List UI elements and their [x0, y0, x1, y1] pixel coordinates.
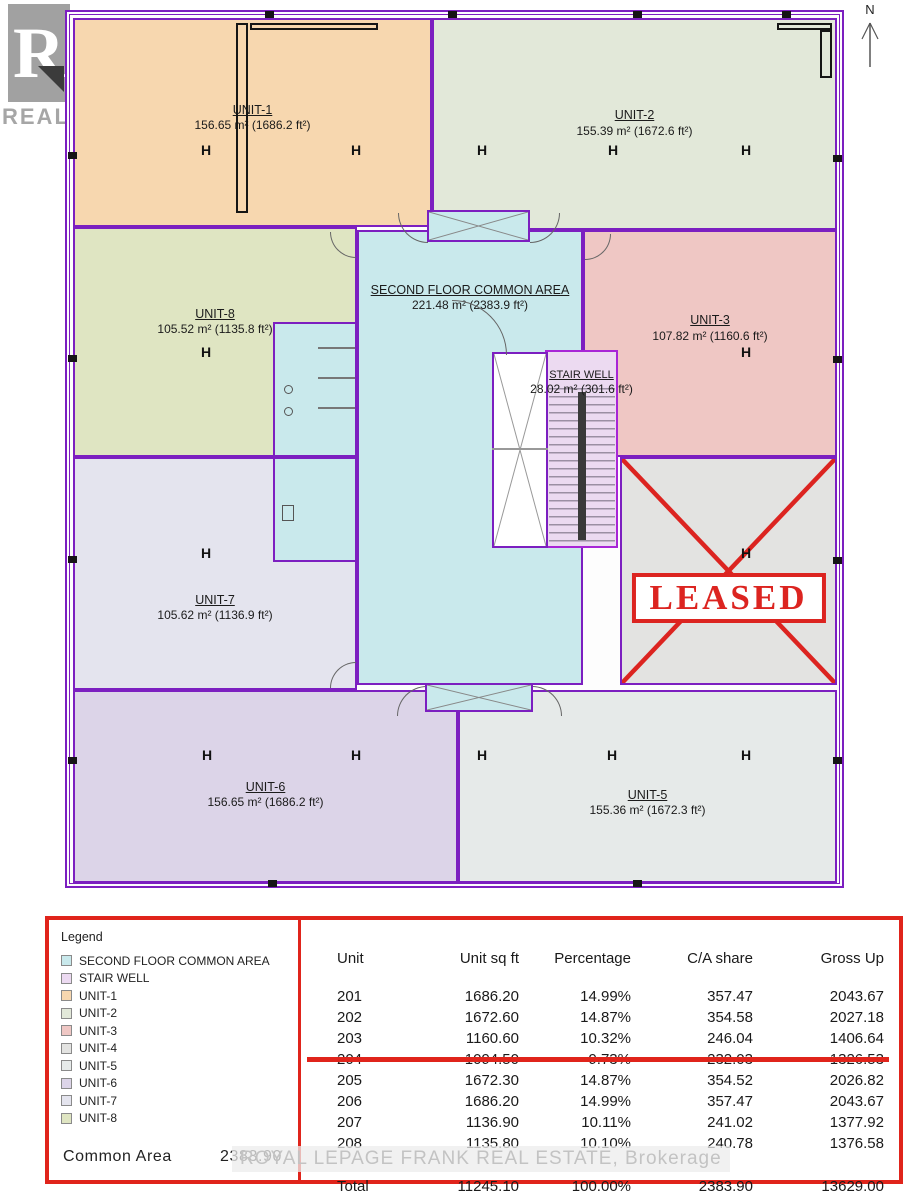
- room-label-unit-3: UNIT-3107.82 m² (1160.6 ft²): [585, 312, 835, 344]
- legend-swatch: [61, 1008, 72, 1019]
- table-cell: 246.04: [631, 1030, 753, 1047]
- table-cell: 1160.60: [391, 1030, 519, 1047]
- column-marker: H: [201, 344, 211, 360]
- table-row: 2061686.2014.99%357.472043.67: [331, 1091, 887, 1112]
- window-mullion: [833, 356, 842, 363]
- window-mullion: [68, 556, 77, 563]
- legend-swatch: [61, 1113, 72, 1124]
- strikethrough-line: [307, 1057, 889, 1062]
- room-unit-4: LEASED: [620, 457, 837, 685]
- table-row: 2071136.9010.11%241.021377.92: [331, 1112, 887, 1133]
- table-row: 2021672.6014.87%354.582027.18: [331, 1007, 887, 1028]
- table-cell: 1686.20: [391, 988, 519, 1005]
- table-cell: 1377.92: [753, 1114, 884, 1131]
- window-mullion: [265, 11, 274, 18]
- table-cell: 14.99%: [519, 1093, 631, 1110]
- legend-item-common: SECOND FLOOR COMMON AREA: [61, 952, 286, 970]
- window-mullion: [68, 355, 77, 362]
- stair-handrail: [578, 392, 586, 540]
- area-table: UnitUnit sq ftPercentageC/A shareGross U…: [301, 920, 899, 1180]
- legend-label: UNIT-8: [79, 1111, 117, 1125]
- room-label-unit-5: UNIT-5155.36 m² (1672.3 ft²): [460, 787, 835, 819]
- table-cell: Percentage: [519, 950, 631, 967]
- leased-stamp: LEASED: [631, 573, 825, 623]
- table-cell: 1376.58: [753, 1135, 884, 1152]
- table-cell: 2043.67: [753, 988, 884, 1005]
- table-cell: 203: [331, 1030, 391, 1047]
- table-cell: 1406.64: [753, 1030, 884, 1047]
- room-label-unit-7: UNIT-7105.62 m² (1136.9 ft²): [75, 592, 355, 624]
- structure-bar: [777, 23, 832, 30]
- column-marker: H: [351, 747, 361, 763]
- legend-label: UNIT-6: [79, 1076, 117, 1090]
- table-cell: 2026.82: [753, 1072, 884, 1089]
- table-header: UnitUnit sq ftPercentageC/A shareGross U…: [331, 948, 887, 969]
- column-marker: H: [477, 142, 487, 158]
- table-cell: Gross Up: [753, 950, 884, 967]
- table-cell: 13629.00: [753, 1178, 884, 1195]
- legend-label: STAIR WELL: [79, 971, 149, 985]
- table-cell: 2043.67: [753, 1093, 884, 1110]
- table-cell: 357.47: [631, 988, 753, 1005]
- legend-items: SECOND FLOOR COMMON AREASTAIR WELLUNIT-1…: [61, 952, 286, 1127]
- north-label: N: [852, 2, 888, 17]
- column-marker: H: [608, 142, 618, 158]
- brokerage-watermark: ROYAL LEPAGE FRANK REAL ESTATE, Brokerag…: [232, 1146, 730, 1172]
- window-mullion: [448, 11, 457, 18]
- table-cell: 1672.30: [391, 1072, 519, 1089]
- common-area-label: Common Area: [63, 1148, 172, 1166]
- legend-item-unit-3: UNIT-3: [61, 1022, 286, 1040]
- column-marker: H: [351, 142, 361, 158]
- room-label-unit-6: UNIT-6156.65 m² (1686.2 ft²): [75, 779, 456, 811]
- table-cell: 201: [331, 988, 391, 1005]
- table-cell: 1136.90: [391, 1114, 519, 1131]
- column-marker: H: [202, 747, 212, 763]
- vestibule-top: [427, 210, 530, 242]
- table-cell: 14.87%: [519, 1072, 631, 1089]
- window-mullion: [268, 880, 277, 887]
- legend-label: UNIT-5: [79, 1059, 117, 1073]
- table-cell: 202: [331, 1009, 391, 1026]
- legend-label: SECOND FLOOR COMMON AREA: [79, 954, 270, 968]
- table-cell: Unit sq ft: [391, 950, 519, 967]
- column-marker: H: [201, 545, 211, 561]
- legend-label: UNIT-1: [79, 989, 117, 1003]
- table-cell: 14.99%: [519, 988, 631, 1005]
- window-mullion: [68, 757, 77, 764]
- window-mullion: [633, 11, 642, 18]
- elevator-shaft: [492, 352, 548, 548]
- table-cell: 357.47: [631, 1093, 753, 1110]
- washrooms-area: [273, 322, 357, 562]
- legend-swatch: [61, 1025, 72, 1036]
- page: R REALTOR® UNIT-1156.65 m² (1686.2 ft²)U…: [0, 0, 919, 1200]
- table-body: 2011686.2014.99%357.472043.672021672.601…: [331, 986, 887, 1154]
- table-total: Total11245.10100.00%2383.9013629.00: [331, 1176, 887, 1197]
- legend-item-unit-8: UNIT-8: [61, 1110, 286, 1128]
- structure-bar: [236, 23, 248, 213]
- legend-swatch: [61, 1095, 72, 1106]
- legend-title: Legend: [61, 930, 286, 944]
- legend-swatch: [61, 1060, 72, 1071]
- column-marker: H: [741, 545, 751, 561]
- table-row: 2011686.2014.99%357.472043.67: [331, 986, 887, 1007]
- room-unit-5: UNIT-5155.36 m² (1672.3 ft²): [458, 690, 837, 883]
- legend-label: UNIT-4: [79, 1041, 117, 1055]
- legend-item-stairwell: STAIR WELL: [61, 970, 286, 988]
- table-cell: 241.02: [631, 1114, 753, 1131]
- table-cell: 10.11%: [519, 1114, 631, 1131]
- table-cell: Unit: [331, 950, 391, 967]
- table-cell: 14.87%: [519, 1009, 631, 1026]
- table-cell: 11245.10: [391, 1178, 519, 1195]
- legend-swatch: [61, 955, 72, 966]
- room-label-unit-1: UNIT-1156.65 m² (1686.2 ft²): [75, 102, 430, 134]
- legend-item-unit-2: UNIT-2: [61, 1005, 286, 1023]
- room-unit-3: UNIT-3107.82 m² (1160.6 ft²): [583, 230, 837, 457]
- column-marker: H: [201, 142, 211, 158]
- window-mullion: [833, 557, 842, 564]
- room-unit-2: UNIT-2155.39 m² (1672.6 ft²): [432, 18, 837, 230]
- column-marker: H: [477, 747, 487, 763]
- legend-item-unit-4: UNIT-4: [61, 1040, 286, 1058]
- table-cell: 354.52: [631, 1072, 753, 1089]
- table-cell: Total: [331, 1178, 391, 1195]
- legend-swatch: [61, 990, 72, 1001]
- table-cell: 2383.90: [631, 1178, 753, 1195]
- structure-bar: [820, 30, 832, 78]
- table-cell: 206: [331, 1093, 391, 1110]
- legend: Legend SECOND FLOOR COMMON AREASTAIR WEL…: [49, 920, 301, 1180]
- table-row: 2031160.6010.32%246.041406.64: [331, 1028, 887, 1049]
- legend-item-unit-6: UNIT-6: [61, 1075, 286, 1093]
- legend-label: UNIT-3: [79, 1024, 117, 1038]
- table-cell: 2027.18: [753, 1009, 884, 1026]
- window-mullion: [68, 152, 77, 159]
- vestibule-bottom: [425, 683, 533, 712]
- window-mullion: [833, 757, 842, 764]
- window-mullion: [633, 880, 642, 887]
- table-row: 2051672.3014.87%354.522026.82: [331, 1070, 887, 1091]
- legend-swatch: [61, 1078, 72, 1089]
- column-marker: H: [741, 747, 751, 763]
- table-cell: 1672.60: [391, 1009, 519, 1026]
- table-cell: 354.58: [631, 1009, 753, 1026]
- window-mullion: [833, 155, 842, 162]
- legend-swatch: [61, 973, 72, 984]
- legend-label: UNIT-2: [79, 1006, 117, 1020]
- window-mullion: [782, 11, 791, 18]
- legend-item-unit-5: UNIT-5: [61, 1057, 286, 1075]
- realtor-logo-icon: R: [8, 4, 70, 102]
- legend-item-unit-7: UNIT-7: [61, 1092, 286, 1110]
- structure-bar: [250, 23, 378, 30]
- table-cell: 205: [331, 1072, 391, 1089]
- summary-panel: Legend SECOND FLOOR COMMON AREASTAIR WEL…: [45, 916, 903, 1184]
- table-cell: 1686.20: [391, 1093, 519, 1110]
- north-arrow-icon: [852, 17, 888, 69]
- table-total-row: Total11245.10100.00%2383.9013629.00: [331, 1176, 887, 1197]
- column-marker: H: [607, 747, 617, 763]
- table-cell: 10.32%: [519, 1030, 631, 1047]
- column-marker: H: [741, 142, 751, 158]
- legend-label: UNIT-7: [79, 1094, 117, 1108]
- column-marker: H: [741, 344, 751, 360]
- room-unit-6: UNIT-6156.65 m² (1686.2 ft²): [73, 690, 458, 883]
- table-cell: 207: [331, 1114, 391, 1131]
- room-unit-1: UNIT-1156.65 m² (1686.2 ft²): [73, 18, 432, 227]
- legend-item-unit-1: UNIT-1: [61, 987, 286, 1005]
- room-label-unit-2: UNIT-2155.39 m² (1672.6 ft²): [434, 107, 835, 139]
- north-arrow: N: [852, 2, 888, 74]
- legend-swatch: [61, 1043, 72, 1054]
- table-cell: C/A share: [631, 950, 753, 967]
- table-cell: 100.00%: [519, 1178, 631, 1195]
